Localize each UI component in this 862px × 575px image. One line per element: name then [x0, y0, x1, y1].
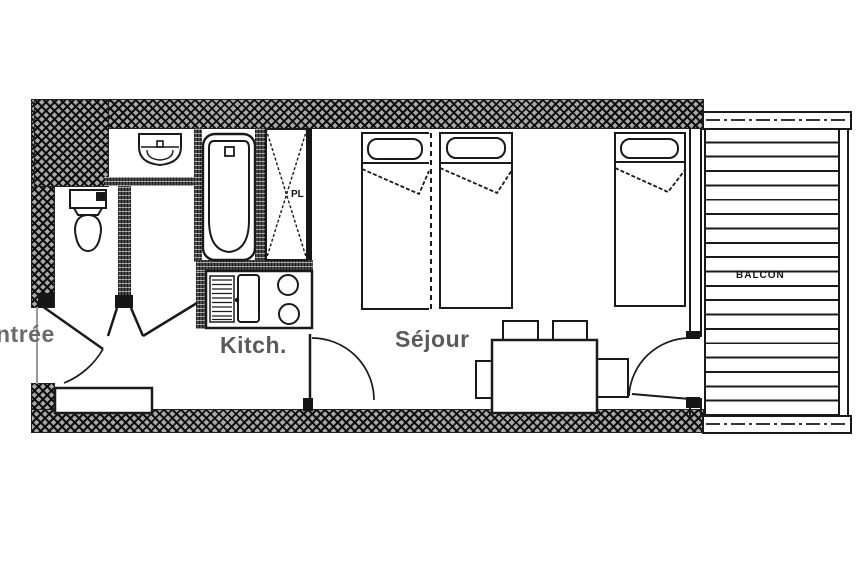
washbasin-icon — [139, 134, 181, 165]
bed2-blanket-fold — [440, 168, 512, 193]
balcony-door-swing — [629, 338, 690, 396]
dining-set — [476, 321, 628, 413]
bed-3 — [615, 133, 685, 306]
toilet-collar — [74, 208, 102, 215]
bathtub-outline — [203, 134, 255, 260]
balcony-door-leaf — [632, 394, 690, 399]
chair-left — [476, 361, 492, 398]
bathroom-door-leaf-b — [143, 303, 197, 336]
bathtub-inner — [209, 141, 249, 252]
sink-faucet-dot — [235, 298, 239, 302]
label-living: Séjour — [395, 326, 470, 353]
floor-plan: ntrée Kitch. Séjour PL BALCON — [0, 0, 862, 575]
bed-2 — [440, 133, 512, 308]
bed2-pillow — [447, 138, 505, 158]
balcony-top-edge — [703, 112, 851, 129]
bed1-pillow — [368, 139, 422, 159]
toilet-bowl — [75, 215, 101, 251]
label-kitchen: Kitch. — [220, 332, 287, 359]
bathroom-door-leaf-a — [131, 308, 143, 336]
entry-door-swing — [64, 349, 103, 383]
washbasin-bowl — [147, 150, 173, 160]
plan-drawing — [0, 0, 862, 575]
entry-cabinet — [55, 388, 152, 413]
label-balcony: BALCON — [736, 270, 785, 281]
living-room-door — [310, 334, 374, 400]
washbasin-faucet — [157, 141, 163, 147]
bed2-outline — [440, 133, 512, 308]
bathtub-drain — [225, 147, 234, 156]
toilet-button — [97, 193, 105, 200]
label-entrance: ntrée — [0, 321, 55, 348]
bathtub-icon — [203, 134, 255, 260]
dining-table — [492, 340, 597, 413]
bed3-pillow — [621, 139, 678, 158]
bed3-blanket-fold — [615, 168, 685, 192]
chair-top-2 — [553, 321, 587, 341]
living-door-swing — [312, 338, 374, 400]
bed-1 — [362, 133, 431, 309]
chair-right — [597, 359, 628, 397]
chair-top-1 — [503, 321, 538, 341]
toilet — [70, 190, 106, 251]
bed1-blanket-fold — [362, 169, 429, 194]
wc-bathroom-doors — [108, 303, 197, 336]
balcony-bottom-edge — [703, 416, 851, 433]
wc-door-leaf — [108, 308, 117, 336]
kitchenette — [206, 271, 312, 328]
label-closet: PL — [291, 189, 304, 200]
balcony-door — [629, 338, 690, 399]
